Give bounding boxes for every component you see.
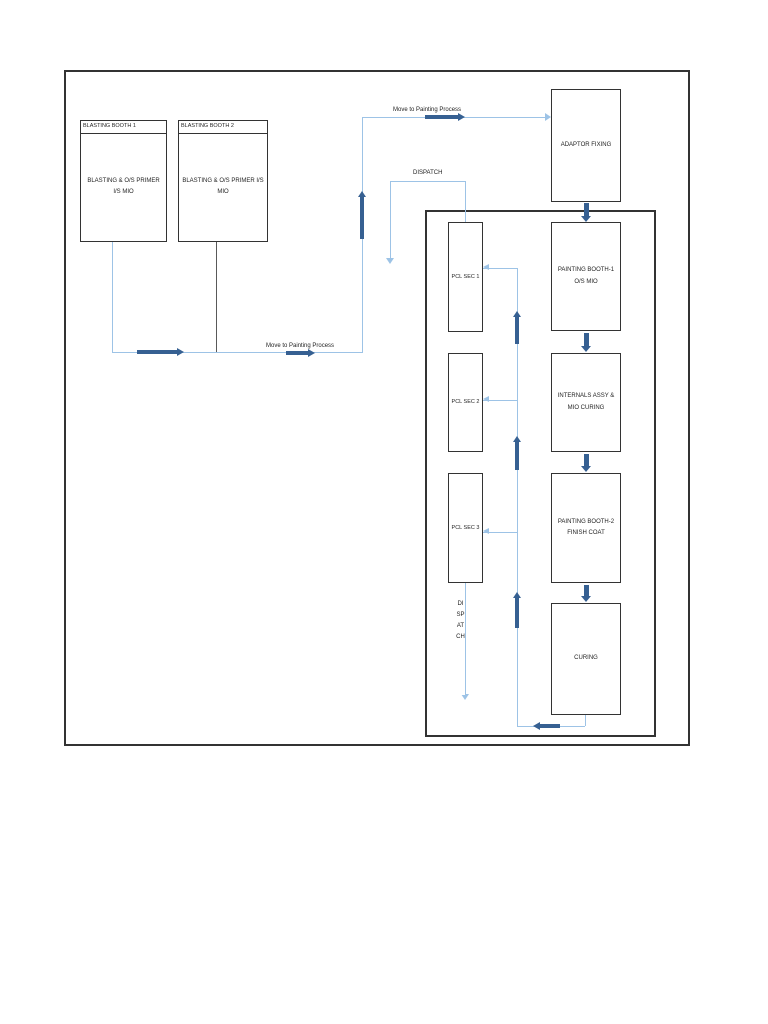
dispatch-right-drop-line (465, 181, 466, 222)
painting-booth-1-box: PAINTING BOOTH-1 O/S MIO (551, 222, 621, 331)
blasting-booth-1-label-line2: I/S MIO (113, 187, 133, 198)
conn-internals-pb2-bar (584, 454, 589, 466)
dispatch-left-drop-line (390, 181, 391, 258)
thick-arrow-bottom2-bar (286, 351, 308, 355)
blasting-booth-1-label: BLASTING & O/S PRIMER I/S MIO (81, 133, 166, 241)
move-to-painting-top-label: Move to Painting Process (393, 107, 461, 114)
thick-arrow-top-bar (425, 115, 458, 119)
pcl-sec-2-box: PCL SEC 2 (448, 353, 483, 452)
blasting-booth-2-label-line1: BLASTING & O/S PRIMER I/S (182, 176, 263, 187)
curing-box: CURING (551, 603, 621, 715)
return-up3-bar (515, 598, 519, 628)
blasting-booth-2-label-line2: MIO (217, 187, 228, 198)
dispatch-top-line (390, 181, 465, 182)
branch-pcl3-arrowhead-icon (483, 528, 489, 534)
thick-arrow-bottom1-bar (137, 350, 177, 354)
painting-booth-2-label: PAINTING BOOTH-2 FINISH COAT (552, 474, 620, 582)
blasting-booth-1-label-line1: BLASTING & O/S PRIMER (87, 176, 159, 187)
booth2-drop-line (216, 242, 217, 352)
blasting-booth-2-box: BLASTING BOOTH 2 BLASTING & O/S PRIMER I… (178, 120, 268, 242)
curing-exit-line (585, 715, 586, 726)
conn-pb1-internals-bar (584, 333, 589, 346)
adaptor-fixing-box: ADAPTOR FIXING (551, 89, 621, 202)
internals-assy-label: INTERNALS ASSY & MIO CURING (552, 354, 620, 451)
document-page: { "colors": { "line_light": "#9DC3E6", "… (0, 0, 768, 1024)
booth1-drop-line (112, 242, 113, 352)
move-to-painting-bottom-label: Move to Painting Process (266, 343, 334, 350)
blasting-booth-2-label: BLASTING & O/S PRIMER I/S MIO (179, 133, 267, 241)
dispatch-left-arrowhead-icon (386, 258, 394, 264)
return-up1-bar (515, 317, 519, 344)
conn-pb2-curing-bar (584, 585, 589, 596)
dispatch-vertical-label: DISPATCH (456, 599, 465, 695)
conn-adaptor-pb1-head-icon (581, 216, 591, 222)
painting-booth-2-line1: PAINTING BOOTH-2 (558, 517, 614, 528)
internals-assy-box: INTERNALS ASSY & MIO CURING (551, 353, 621, 452)
painting-booth-1-line1: PAINTING BOOTH-1 (558, 265, 614, 276)
dispatch-vertical-line (465, 583, 466, 695)
pcl-sec-1-box: PCL SEC 1 (448, 222, 483, 332)
branch-pcl1-arrowhead-icon (483, 264, 489, 270)
adaptor-fixing-label: ADAPTOR FIXING (552, 90, 620, 201)
curing-label: CURING (552, 604, 620, 714)
painting-booth-1-label: PAINTING BOOTH-1 O/S MIO (552, 223, 620, 330)
move-top-arrowhead-icon (545, 113, 551, 121)
pcl-sec-2-label: PCL SEC 2 (449, 354, 482, 451)
pcl-sec-3-label: PCL SEC 3 (449, 474, 482, 582)
return-left-arrow-bar (540, 724, 560, 728)
thick-arrow-bottom1-head-icon (177, 348, 184, 356)
conn-adaptor-pb1-bar (584, 203, 589, 216)
thick-arrow-riser-bar (360, 197, 364, 239)
return-left-arrow-head-icon (533, 722, 540, 730)
internals-assy-line1: INTERNALS ASSY & (558, 391, 615, 402)
return-up2-bar (515, 442, 519, 470)
conn-pb2-curing-head-icon (581, 596, 591, 602)
branch-pcl2-arrowhead-icon (483, 396, 489, 402)
blasting-booth-1-box: BLASTING BOOTH 1 BLASTING & O/S PRIMER I… (80, 120, 167, 242)
pcl-sec-1-label: PCL SEC 1 (449, 223, 482, 331)
internals-assy-line2: MIO CURING (568, 403, 605, 414)
conn-internals-pb2-head-icon (581, 466, 591, 472)
pcl-sec-3-box: PCL SEC 3 (448, 473, 483, 583)
painting-booth-2-box: PAINTING BOOTH-2 FINISH COAT (551, 473, 621, 583)
painting-booth-2-line2: FINISH COAT (567, 528, 605, 539)
painting-booth-1-line2: O/S MIO (574, 277, 597, 288)
conn-pb1-internals-head-icon (581, 346, 591, 352)
dispatch-label: DISPATCH (413, 170, 442, 177)
